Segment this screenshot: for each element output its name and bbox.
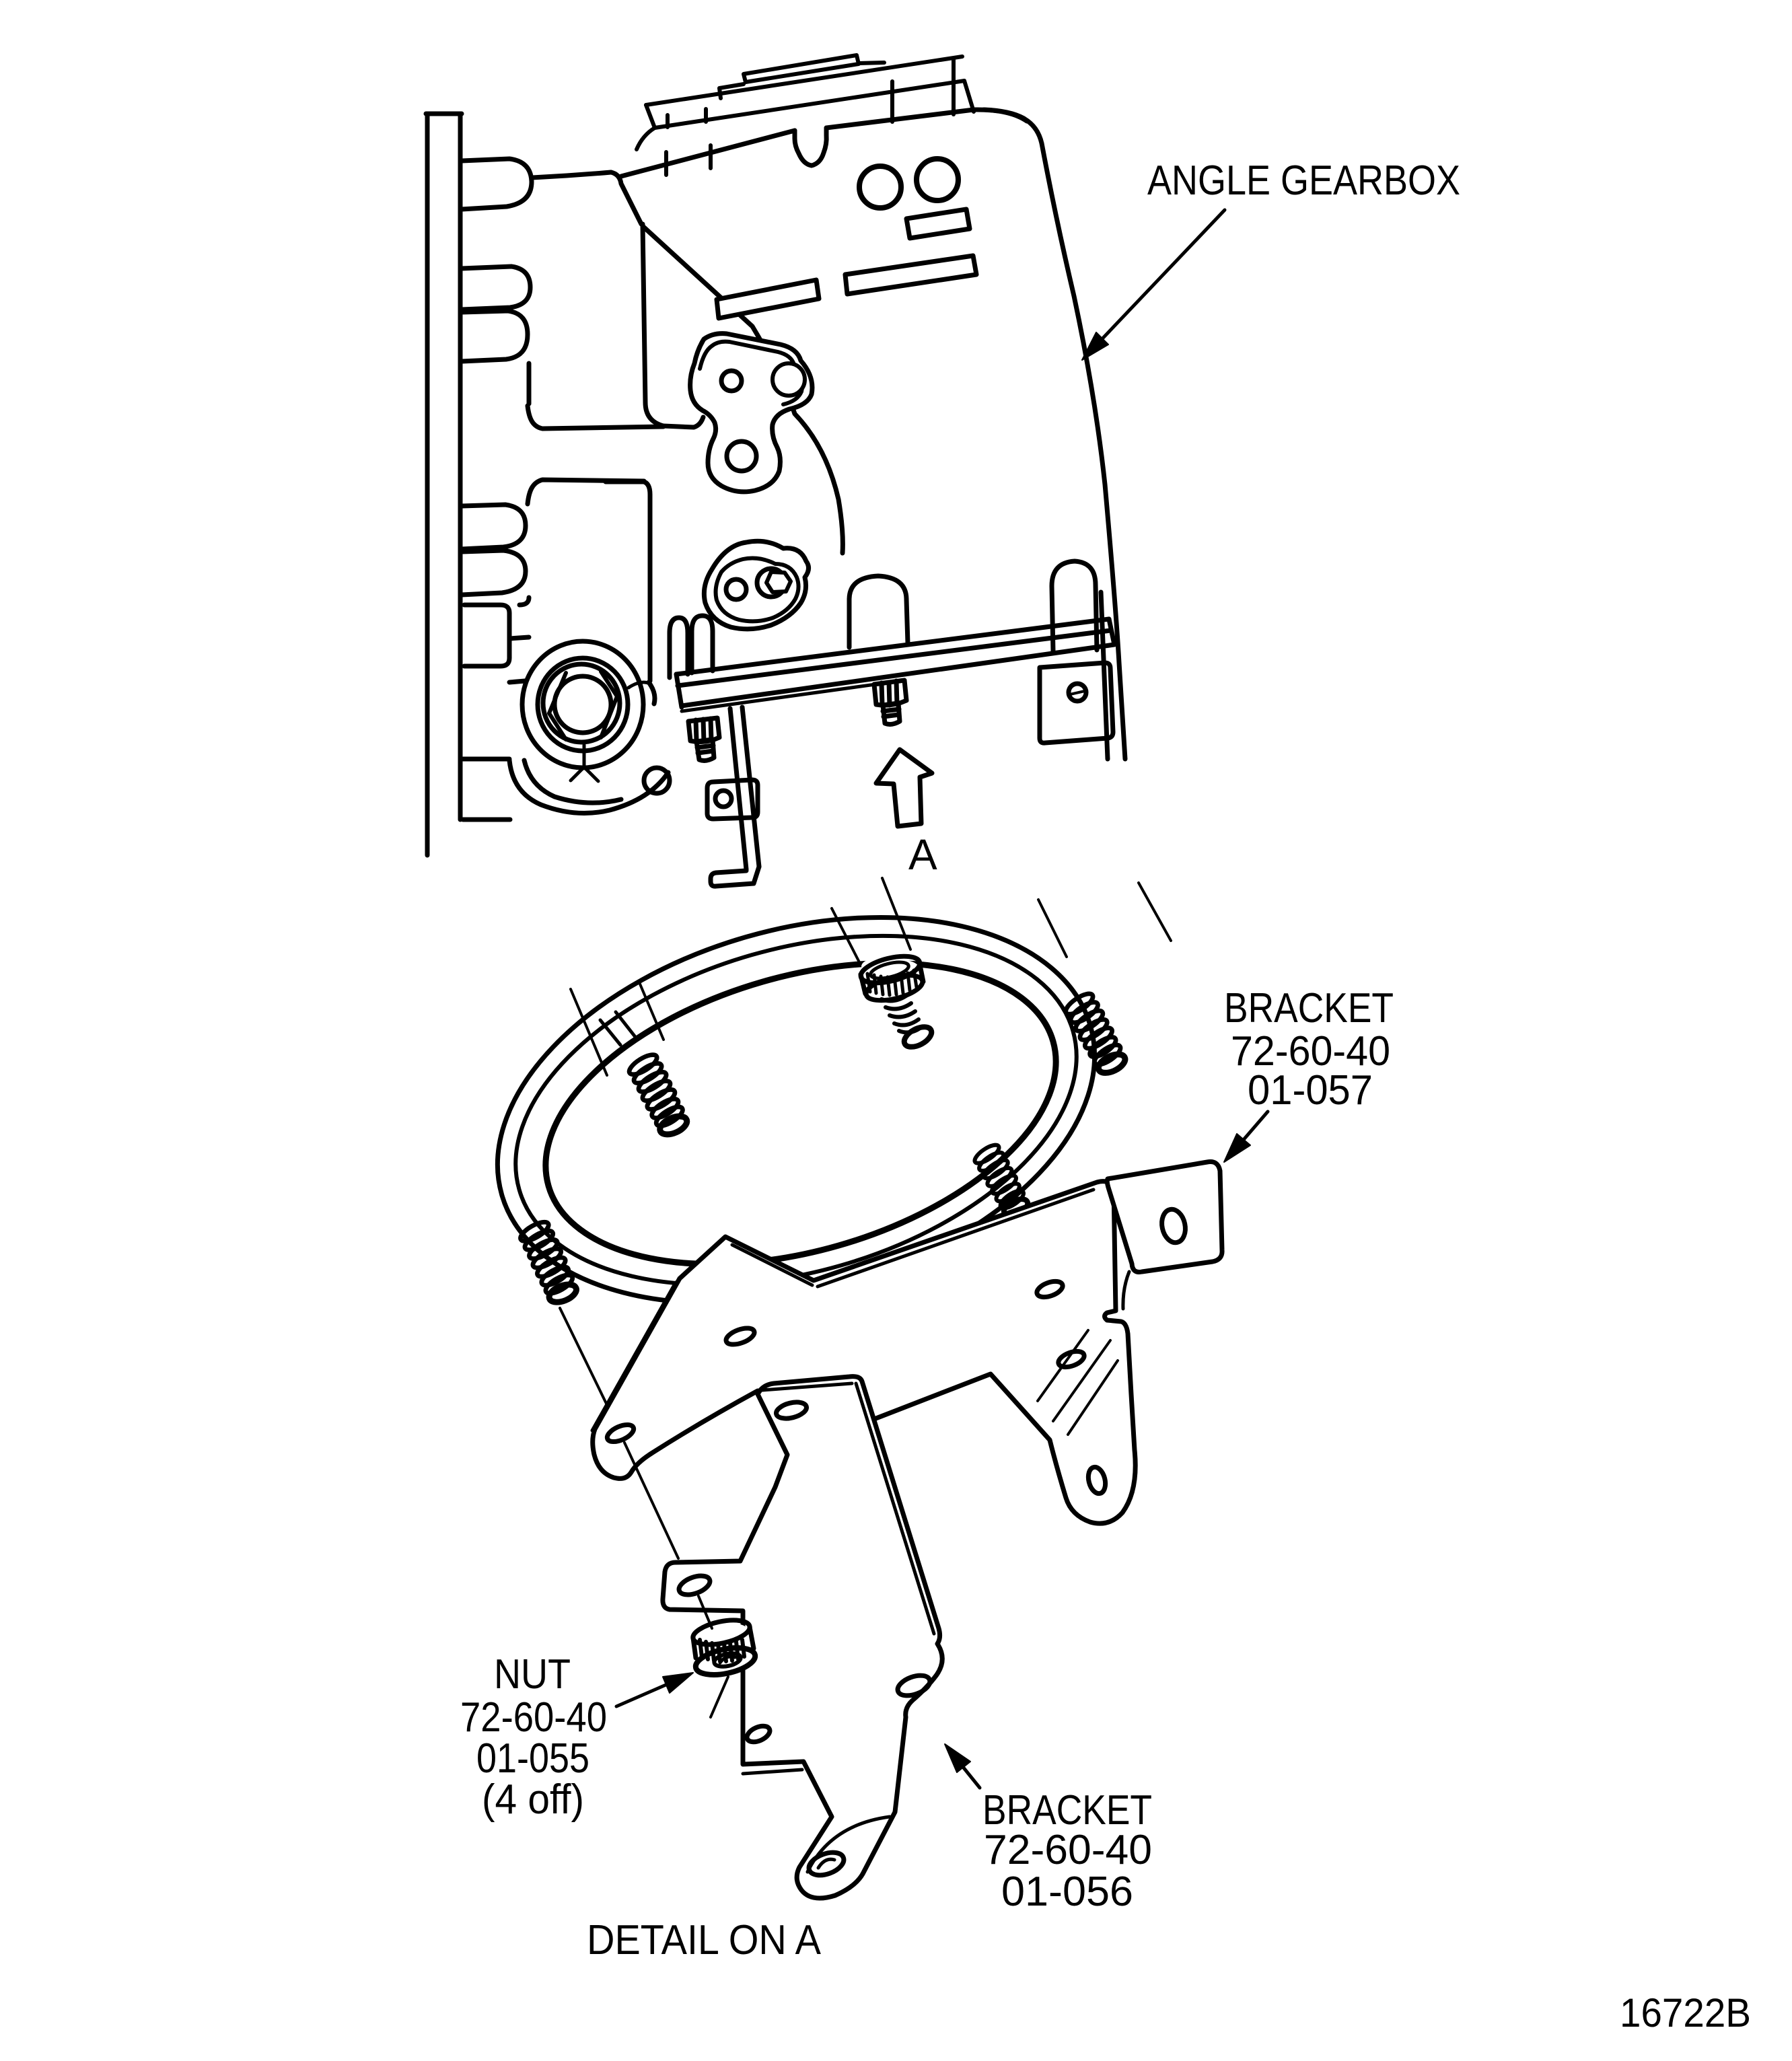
svg-text:01-055: 01-055 <box>476 1735 589 1782</box>
svg-text:01-057: 01-057 <box>1248 1067 1373 1114</box>
svg-text:NUT: NUT <box>494 1651 571 1698</box>
svg-text:(4 off): (4 off) <box>482 1776 584 1823</box>
svg-text:DETAIL ON A: DETAIL ON A <box>587 1917 822 1963</box>
svg-text:16722B: 16722B <box>1620 1990 1751 2035</box>
svg-text:72-60-40: 72-60-40 <box>460 1694 607 1741</box>
svg-text:ANGLE GEARBOX: ANGLE GEARBOX <box>1147 157 1460 204</box>
svg-text:A: A <box>908 830 937 879</box>
svg-text:01-056: 01-056 <box>1001 1869 1133 1915</box>
svg-text:BRACKET: BRACKET <box>1224 985 1394 1032</box>
svg-text:72-60-40: 72-60-40 <box>984 1827 1152 1873</box>
